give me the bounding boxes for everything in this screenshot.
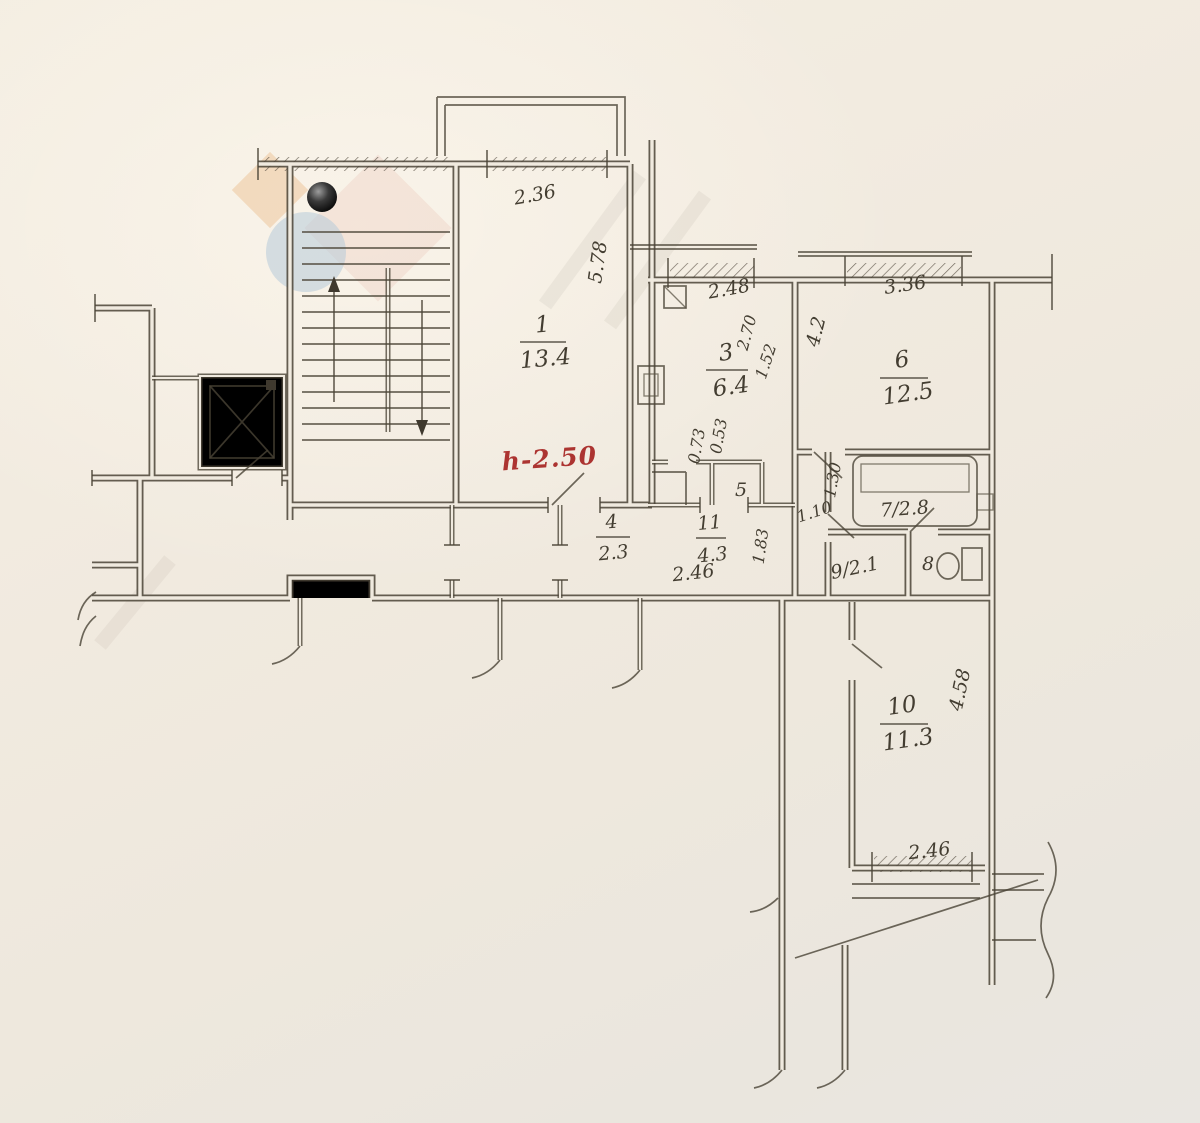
room-10-area: 11.3	[881, 724, 935, 757]
dim-room10-width: 2.46	[906, 838, 951, 864]
room-9-label: 9/2.1	[829, 552, 881, 584]
room-4-number: 4	[603, 511, 618, 534]
break-s-curve	[1041, 842, 1056, 998]
dim-room1-width: 2.36	[511, 181, 557, 210]
slab-room6	[798, 252, 972, 256]
toilet-bowl	[937, 553, 959, 579]
height-note: h-2.50	[501, 441, 598, 477]
room-11-number: 11	[696, 511, 722, 535]
toilet-tank	[962, 548, 982, 580]
room-3-number: 3	[717, 339, 735, 367]
dim-room3-depth: 2.70	[733, 313, 761, 353]
room-10-number: 10	[886, 691, 919, 721]
dim-bath-door: 1.10	[794, 497, 834, 526]
bathtub-inner	[861, 464, 969, 492]
room-8-number: 8	[922, 553, 934, 575]
site-diagonal	[795, 880, 1038, 958]
room-3-area: 6.4	[711, 372, 751, 403]
dim-bath-left: 1.30	[820, 461, 845, 499]
room-6-area: 12.5	[881, 378, 935, 411]
room-4-area: 2.3	[596, 541, 629, 566]
dim-hall-depth: 1.83	[749, 527, 773, 565]
door-room10	[852, 644, 882, 668]
dimension-labels: 2.36 5.78 2.48 2.70 1.52 3.36 4.2 0.73 0…	[511, 181, 975, 865]
dim-door-width: 0.53	[706, 417, 731, 455]
room-7-label: 7/2.8	[880, 496, 930, 521]
dim-hall-width: 2.46	[670, 560, 715, 586]
door-corridor	[552, 473, 584, 505]
door-room3	[652, 472, 686, 505]
balcony-room10	[852, 884, 980, 898]
balcony-top	[437, 97, 625, 156]
dim-room3-depth-2: 1.52	[751, 341, 780, 381]
floor-plan-drawing: 1 13.4 3 6.4 4 2.3 5 6 12.5 7/2.8 8 9/2.…	[0, 0, 1200, 1123]
stair-arrowhead-down	[416, 420, 428, 436]
room-5-number: 5	[735, 479, 747, 501]
room-1-area: 13.4	[519, 344, 572, 374]
dim-door-pier: 0.73	[684, 427, 709, 465]
dim-room6-width: 3.36	[883, 271, 928, 299]
dim-room10-depth: 4.58	[945, 667, 976, 714]
scan-artifact-ball	[307, 182, 337, 212]
watermark-logo	[100, 152, 705, 645]
staircase	[302, 232, 450, 440]
elevator-corner-mark	[266, 380, 276, 390]
dim-room6-depth: 4.2	[802, 314, 831, 350]
scanned-floor-plan-page: 1 13.4 3 6.4 4 2.3 5 6 12.5 7/2.8 8 9/2.…	[0, 0, 1200, 1123]
dim-room1-depth: 5.78	[584, 240, 612, 285]
right-wall-lines	[992, 874, 1044, 940]
room-6-number: 6	[893, 346, 911, 374]
room-1-number: 1	[534, 311, 551, 338]
vent-shaft-diagonal	[664, 286, 686, 308]
